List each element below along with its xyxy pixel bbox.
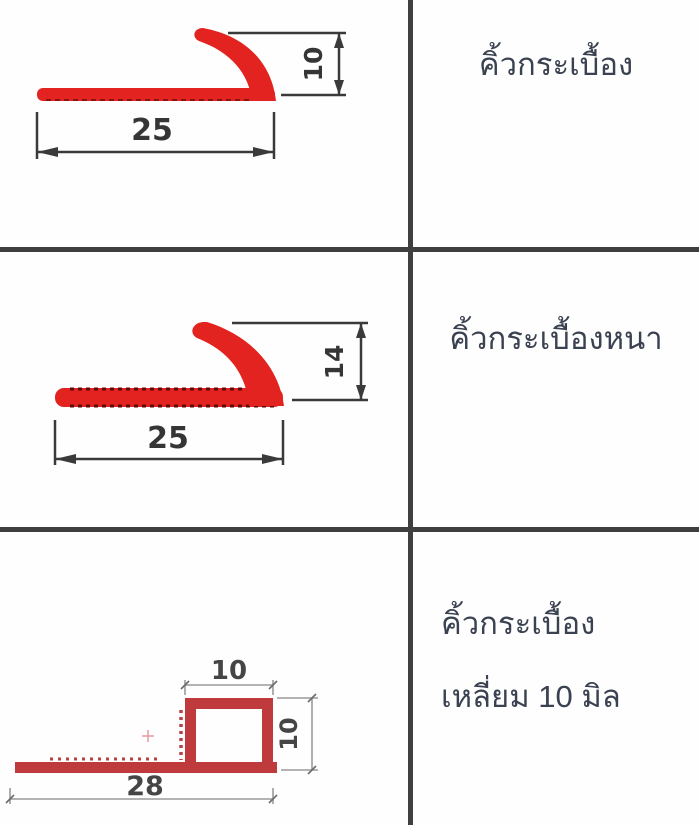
- round-trim-label-cell: คิ้วกระเบื้อง: [413, 0, 699, 252]
- arrow-left: [37, 147, 58, 157]
- center-cross-mark: [142, 730, 154, 742]
- product-name-line1: คิ้วกระเบื้อง: [441, 588, 595, 661]
- arrow-left: [55, 454, 76, 464]
- table-row: 10 25 คิ้วกระเบื้อง: [0, 0, 699, 252]
- thick-round-trim-drawing: 14 25: [0, 252, 413, 532]
- thick-round-trim-label-cell: คิ้วกระเบื้องหนา: [413, 252, 699, 532]
- box-top-dimension-value: 10: [211, 656, 247, 686]
- table-row: 14 25 คิ้วกระเบื้องหนา: [0, 252, 699, 532]
- width-dimension-value: 25: [131, 113, 173, 148]
- width-dimension-value: 28: [126, 771, 164, 802]
- arrow-down: [356, 385, 366, 400]
- arrow-right: [262, 454, 283, 464]
- arrow-right: [253, 147, 274, 157]
- square-trim-diagram: 10 10 28: [0, 532, 408, 825]
- thick-round-trim-diagram: 14 25: [0, 252, 408, 527]
- round-trim-drawing: 10 25: [0, 0, 413, 252]
- square-trim-drawing: 10 10 28: [0, 532, 413, 825]
- product-table: 10 25 คิ้วกระเบื้อง: [0, 0, 699, 825]
- height-dimension-value: 10: [299, 47, 328, 82]
- height-dimension-value: 14: [320, 345, 349, 380]
- arrow-up: [334, 33, 344, 48]
- width-dimension-value: 25: [147, 421, 189, 456]
- product-name: คิ้วกระเบื้อง: [479, 44, 633, 86]
- arrow-down: [334, 80, 344, 95]
- arrow-up: [356, 323, 366, 338]
- square-trim-label-cell: คิ้วกระเบื้อง เหลี่ยม 10 มิล: [413, 532, 699, 825]
- product-name-line2: เหลี่ยม 10 มิล: [441, 661, 621, 734]
- round-trim-diagram: 10 25: [0, 0, 408, 247]
- box-height-dimension-value: 10: [275, 717, 303, 750]
- product-name: คิ้วกระเบื้องหนา: [449, 318, 662, 360]
- table-row: 10 10 28: [0, 532, 699, 825]
- trim-box-hollow: [196, 709, 262, 762]
